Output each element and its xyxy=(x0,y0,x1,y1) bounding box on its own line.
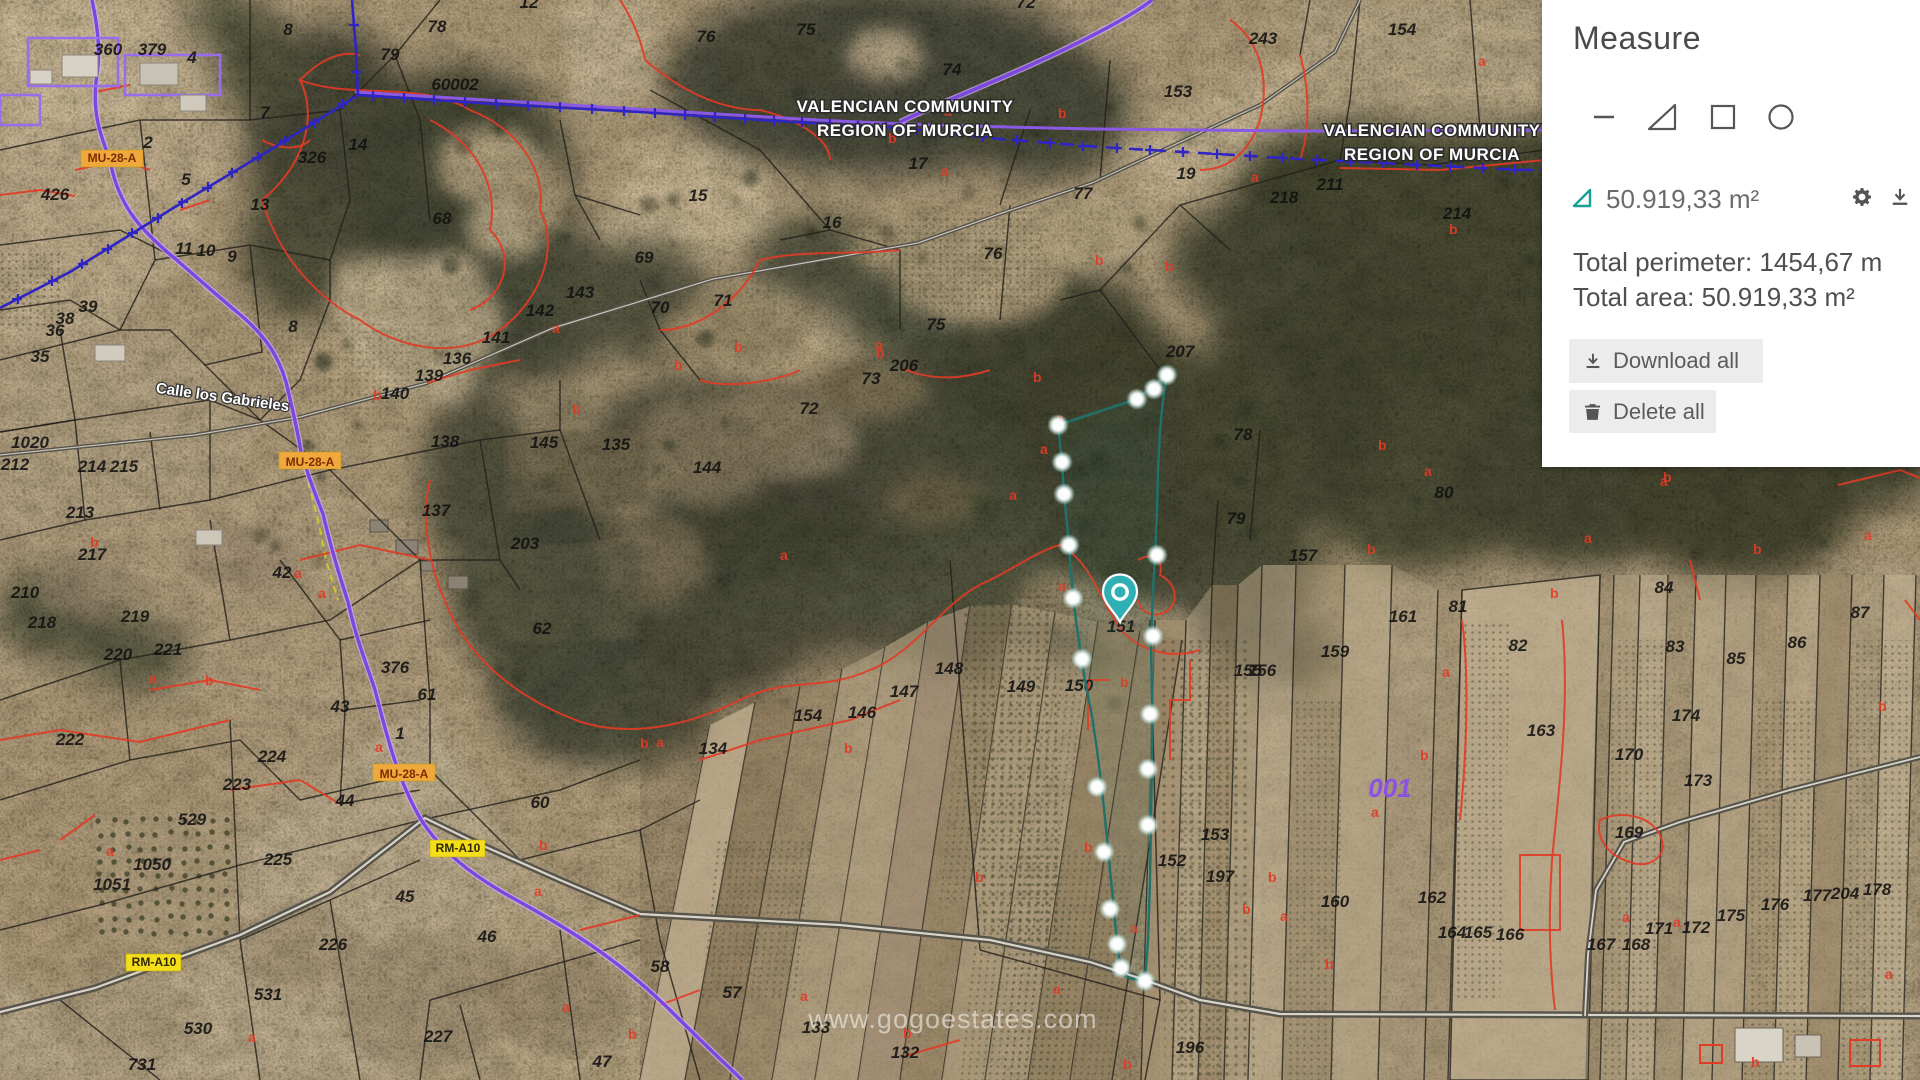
svg-text:2: 2 xyxy=(142,133,153,152)
svg-text:140: 140 xyxy=(381,384,410,403)
svg-text:78: 78 xyxy=(1234,425,1253,444)
svg-text:9: 9 xyxy=(227,247,237,266)
svg-text:74: 74 xyxy=(943,60,962,79)
svg-text:b: b xyxy=(1033,369,1042,385)
svg-text:76: 76 xyxy=(697,27,716,46)
svg-text:www.gogoestates.com: www.gogoestates.com xyxy=(807,1004,1097,1034)
svg-text:b: b xyxy=(1325,956,1334,972)
svg-text:a: a xyxy=(1280,908,1288,924)
svg-text:a: a xyxy=(1371,804,1379,820)
svg-text:b: b xyxy=(674,357,683,373)
svg-text:a: a xyxy=(534,883,542,899)
svg-text:RM-A10: RM-A10 xyxy=(436,841,481,855)
svg-text:39: 39 xyxy=(79,297,98,316)
svg-text:RM-A10: RM-A10 xyxy=(132,955,177,969)
svg-text:83: 83 xyxy=(1666,637,1685,656)
svg-text:137: 137 xyxy=(422,501,452,520)
svg-text:1050: 1050 xyxy=(133,855,171,874)
svg-text:227: 227 xyxy=(423,1027,454,1046)
svg-text:165: 165 xyxy=(1464,923,1493,942)
svg-text:135: 135 xyxy=(602,435,631,454)
svg-text:223: 223 xyxy=(222,775,252,794)
svg-text:43: 43 xyxy=(330,697,350,716)
svg-text:71: 71 xyxy=(714,291,733,310)
svg-text:a: a xyxy=(1424,463,1432,479)
svg-text:203: 203 xyxy=(510,534,540,553)
svg-text:85: 85 xyxy=(1727,649,1746,668)
svg-text:141: 141 xyxy=(482,328,510,347)
svg-text:87: 87 xyxy=(1851,603,1871,622)
svg-text:197: 197 xyxy=(1206,867,1236,886)
svg-text:243: 243 xyxy=(1248,29,1278,48)
svg-text:35: 35 xyxy=(31,347,50,366)
svg-text:11: 11 xyxy=(175,239,193,258)
svg-text:b: b xyxy=(640,735,649,751)
svg-text:147: 147 xyxy=(890,682,920,701)
svg-text:a: a xyxy=(1660,473,1668,489)
svg-text:58: 58 xyxy=(651,957,670,976)
svg-text:a: a xyxy=(1040,441,1048,457)
svg-text:a: a xyxy=(1478,53,1486,69)
svg-text:b: b xyxy=(1367,541,1376,557)
svg-text:163: 163 xyxy=(1527,721,1556,740)
svg-text:44: 44 xyxy=(335,791,355,810)
svg-text:a: a xyxy=(318,585,326,601)
svg-text:152: 152 xyxy=(1158,851,1187,870)
svg-text:219: 219 xyxy=(120,607,150,626)
svg-text:159: 159 xyxy=(1321,642,1350,661)
svg-text:167: 167 xyxy=(1587,935,1617,954)
svg-text:73: 73 xyxy=(862,369,881,388)
svg-text:138: 138 xyxy=(431,432,460,451)
svg-text:174: 174 xyxy=(1672,706,1701,725)
svg-text:a: a xyxy=(1251,169,1259,185)
svg-text:42: 42 xyxy=(272,563,292,582)
svg-text:14: 14 xyxy=(349,135,368,154)
svg-text:b: b xyxy=(628,1026,637,1042)
svg-text:MU-28-A: MU-28-A xyxy=(88,151,137,165)
svg-text:148: 148 xyxy=(935,659,964,678)
svg-text:62: 62 xyxy=(533,619,552,638)
svg-text:134: 134 xyxy=(699,739,728,758)
svg-text:7: 7 xyxy=(260,103,271,122)
svg-text:a: a xyxy=(780,547,788,563)
svg-text:b: b xyxy=(844,740,853,756)
svg-text:178: 178 xyxy=(1863,880,1892,899)
svg-text:15: 15 xyxy=(689,186,708,205)
svg-text:166: 166 xyxy=(1496,925,1525,944)
svg-text:326: 326 xyxy=(298,148,327,167)
svg-text:68: 68 xyxy=(433,209,452,228)
svg-text:210: 210 xyxy=(10,583,40,602)
svg-text:b: b xyxy=(1753,541,1762,557)
svg-text:VALENCIAN COMMUNITY: VALENCIAN COMMUNITY xyxy=(797,97,1014,116)
svg-text:72: 72 xyxy=(1017,0,1036,12)
svg-text:164: 164 xyxy=(1438,923,1467,942)
svg-text:218: 218 xyxy=(1269,188,1299,207)
svg-text:136: 136 xyxy=(443,349,472,368)
svg-text:57: 57 xyxy=(723,983,743,1002)
svg-text:70: 70 xyxy=(651,298,670,317)
svg-text:76: 76 xyxy=(984,244,1003,263)
svg-text:153: 153 xyxy=(1201,825,1230,844)
svg-text:47: 47 xyxy=(592,1052,613,1071)
svg-text:379: 379 xyxy=(138,40,167,59)
svg-text:157: 157 xyxy=(1289,546,1319,565)
svg-text:221: 221 xyxy=(153,640,182,659)
svg-text:146: 146 xyxy=(848,703,877,722)
svg-text:77: 77 xyxy=(1074,184,1094,203)
svg-text:a: a xyxy=(552,320,560,336)
svg-text:MU-28-A: MU-28-A xyxy=(286,455,335,469)
svg-text:REGION OF MURCIA: REGION OF MURCIA xyxy=(817,121,993,140)
svg-text:46: 46 xyxy=(477,927,497,946)
svg-text:530: 530 xyxy=(184,1019,213,1038)
svg-text:b: b xyxy=(975,869,984,885)
svg-text:b: b xyxy=(1420,747,1429,763)
svg-text:196: 196 xyxy=(1176,1038,1205,1057)
svg-text:171: 171 xyxy=(1645,919,1673,938)
svg-text:36: 36 xyxy=(46,321,65,340)
svg-text:145: 145 xyxy=(530,433,559,452)
svg-text:1: 1 xyxy=(395,724,404,743)
svg-text:82: 82 xyxy=(1509,636,1528,655)
svg-text:a: a xyxy=(375,739,383,755)
svg-text:16: 16 xyxy=(823,213,842,232)
svg-text:b: b xyxy=(373,387,382,403)
svg-text:10: 10 xyxy=(197,241,216,260)
svg-text:177: 177 xyxy=(1803,886,1833,905)
svg-text:12: 12 xyxy=(520,0,539,12)
svg-text:175: 175 xyxy=(1717,906,1746,925)
svg-text:8: 8 xyxy=(288,317,298,336)
svg-text:212: 212 xyxy=(0,455,30,474)
svg-text:86: 86 xyxy=(1788,633,1807,652)
svg-text:REGION OF MURCIA: REGION OF MURCIA xyxy=(1344,145,1520,164)
svg-text:214: 214 xyxy=(77,457,107,476)
svg-text:79: 79 xyxy=(1227,509,1246,528)
svg-text:72: 72 xyxy=(800,399,819,418)
svg-text:222: 222 xyxy=(55,730,85,749)
svg-text:b: b xyxy=(1095,252,1104,268)
svg-text:a: a xyxy=(1053,981,1061,997)
svg-text:144: 144 xyxy=(693,458,722,477)
svg-text:75: 75 xyxy=(927,315,946,334)
svg-text:001: 001 xyxy=(1368,773,1411,803)
svg-text:211: 211 xyxy=(1315,175,1343,194)
svg-text:b: b xyxy=(1058,105,1067,121)
svg-text:a: a xyxy=(106,843,114,859)
svg-text:225: 225 xyxy=(263,850,293,869)
svg-text:13: 13 xyxy=(251,195,270,214)
svg-text:a: a xyxy=(1622,909,1630,925)
svg-text:154: 154 xyxy=(1388,20,1417,39)
svg-text:MU-28-A: MU-28-A xyxy=(380,767,429,781)
svg-text:8: 8 xyxy=(283,20,293,39)
svg-text:1051: 1051 xyxy=(93,875,131,894)
svg-text:226: 226 xyxy=(318,935,348,954)
svg-text:213: 213 xyxy=(65,503,95,522)
svg-text:a: a xyxy=(1885,966,1893,982)
svg-text:b: b xyxy=(1449,221,1458,237)
svg-text:a: a xyxy=(294,565,302,581)
svg-text:b: b xyxy=(1878,698,1887,714)
svg-text:VALENCIAN COMMUNITY: VALENCIAN COMMUNITY xyxy=(1324,121,1541,140)
svg-text:78: 78 xyxy=(428,17,447,36)
svg-text:173: 173 xyxy=(1684,771,1713,790)
svg-text:b: b xyxy=(1165,258,1174,274)
svg-text:45: 45 xyxy=(395,887,415,906)
svg-text:204: 204 xyxy=(1830,884,1860,903)
svg-text:169: 169 xyxy=(1615,823,1644,842)
svg-text:156: 156 xyxy=(1248,661,1277,680)
svg-text:17: 17 xyxy=(909,154,929,173)
svg-text:61: 61 xyxy=(418,685,437,704)
svg-text:731: 731 xyxy=(128,1055,156,1074)
svg-text:60002: 60002 xyxy=(431,75,479,94)
svg-text:84: 84 xyxy=(1655,578,1674,597)
svg-text:a: a xyxy=(800,988,808,1004)
svg-text:172: 172 xyxy=(1682,918,1711,937)
svg-text:215: 215 xyxy=(109,457,139,476)
svg-text:80: 80 xyxy=(1435,483,1454,502)
svg-text:206: 206 xyxy=(889,356,919,375)
svg-text:19: 19 xyxy=(1177,164,1196,183)
svg-text:b: b xyxy=(1268,869,1277,885)
svg-text:149: 149 xyxy=(1007,677,1036,696)
svg-text:b: b xyxy=(1550,585,1559,601)
svg-text:224: 224 xyxy=(257,747,287,766)
svg-text:a: a xyxy=(562,999,570,1015)
svg-text:132: 132 xyxy=(891,1043,920,1062)
svg-text:170: 170 xyxy=(1615,745,1644,764)
svg-text:531: 531 xyxy=(254,985,282,1004)
svg-text:b: b xyxy=(1123,1056,1132,1072)
svg-text:81: 81 xyxy=(1449,597,1468,616)
svg-text:376: 376 xyxy=(381,658,410,677)
svg-text:1020: 1020 xyxy=(11,433,49,452)
svg-text:5: 5 xyxy=(181,170,191,189)
svg-text:b: b xyxy=(734,339,743,355)
svg-text:218: 218 xyxy=(27,613,57,632)
svg-text:360: 360 xyxy=(94,40,123,59)
svg-text:a: a xyxy=(1864,527,1872,543)
svg-text:b: b xyxy=(90,534,99,550)
svg-text:b: b xyxy=(1378,437,1387,453)
svg-text:220: 220 xyxy=(103,645,133,664)
svg-text:a: a xyxy=(1673,914,1681,930)
svg-text:a: a xyxy=(1442,664,1450,680)
svg-text:a: a xyxy=(941,163,949,179)
svg-text:142: 142 xyxy=(526,301,555,320)
svg-text:79: 79 xyxy=(381,45,400,64)
svg-text:176: 176 xyxy=(1761,895,1790,914)
svg-text:60: 60 xyxy=(531,793,550,812)
svg-text:207: 207 xyxy=(1165,342,1196,361)
svg-text:a: a xyxy=(1009,487,1017,503)
svg-text:161: 161 xyxy=(1389,607,1417,626)
svg-text:b: b xyxy=(876,345,885,361)
svg-text:426: 426 xyxy=(40,185,70,204)
svg-text:160: 160 xyxy=(1321,892,1350,911)
svg-text:529: 529 xyxy=(178,810,207,829)
svg-text:4: 4 xyxy=(186,48,197,67)
svg-text:b: b xyxy=(205,672,214,688)
svg-text:a: a xyxy=(248,1029,256,1045)
svg-text:b: b xyxy=(1751,1054,1760,1070)
svg-text:143: 143 xyxy=(566,283,595,302)
svg-text:162: 162 xyxy=(1418,888,1447,907)
svg-text:b: b xyxy=(1242,901,1251,917)
svg-text:b: b xyxy=(1084,839,1093,855)
svg-text:154: 154 xyxy=(794,706,823,725)
svg-text:a: a xyxy=(656,734,664,750)
svg-text:a: a xyxy=(1584,530,1592,546)
svg-text:69: 69 xyxy=(635,248,654,267)
svg-text:139: 139 xyxy=(415,366,444,385)
svg-text:a: a xyxy=(149,670,157,686)
svg-text:b: b xyxy=(572,401,581,417)
svg-text:b: b xyxy=(539,837,548,853)
svg-text:153: 153 xyxy=(1164,82,1193,101)
svg-text:75: 75 xyxy=(797,20,816,39)
